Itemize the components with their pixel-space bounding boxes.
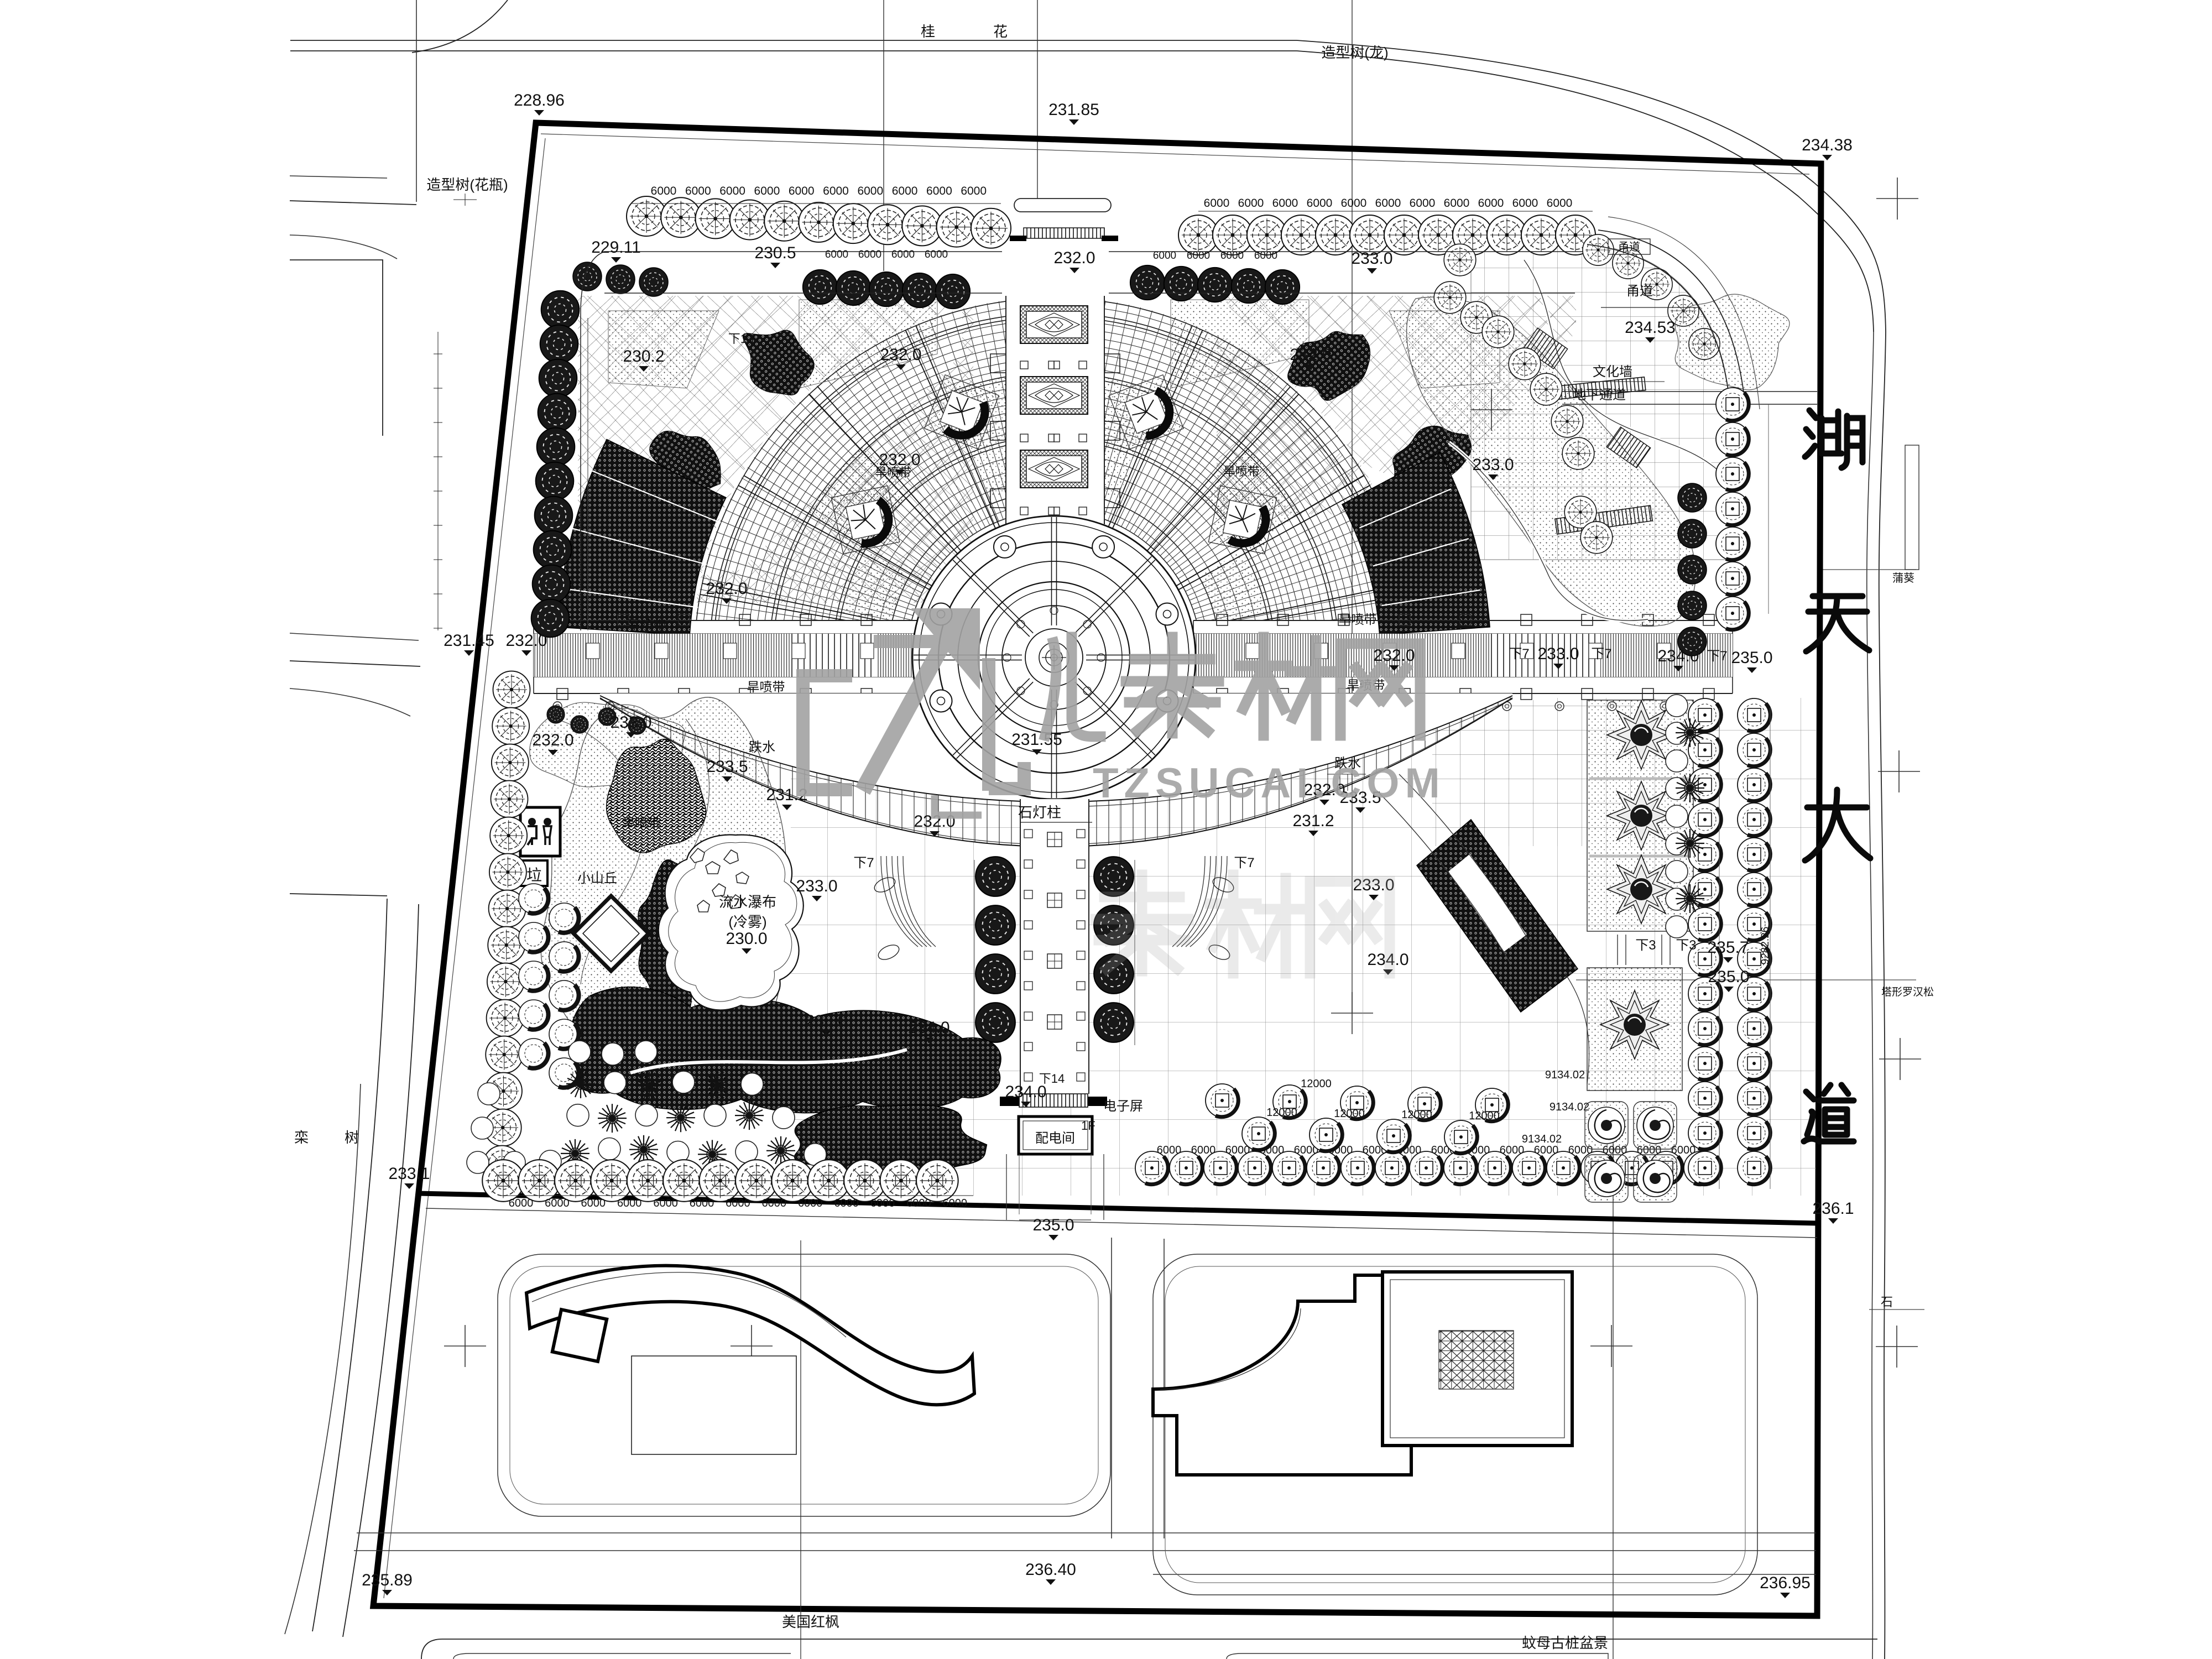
svg-text:6000: 6000 [685,185,711,197]
svg-text:231.85: 231.85 [1048,101,1099,119]
svg-text:下7: 下7 [1509,646,1529,661]
svg-text:6000: 6000 [653,1197,678,1209]
svg-text:231.55: 231.55 [1011,731,1062,749]
svg-text:235.0: 235.0 [1032,1216,1074,1234]
svg-text:6000: 6000 [1341,197,1367,210]
svg-text:配电间: 配电间 [1035,1131,1075,1146]
svg-text:6000: 6000 [1444,197,1470,210]
svg-text:下3: 下3 [1635,938,1656,953]
svg-text:旱喷带: 旱喷带 [628,618,666,632]
svg-text:6000: 6000 [789,185,815,197]
svg-text:12000: 12000 [1301,1078,1332,1090]
svg-text:6000: 6000 [545,1197,570,1209]
svg-text:232.0: 232.0 [1053,249,1095,267]
svg-text:(冷雾): (冷雾) [728,914,766,930]
svg-text:树: 树 [345,1129,359,1146]
svg-text:6000: 6000 [1225,1144,1250,1156]
svg-text:6000: 6000 [834,1197,859,1209]
svg-text:6000: 6000 [754,185,780,197]
svg-text:232.0: 232.0 [706,580,747,598]
svg-text:旱喷带: 旱喷带 [623,816,661,830]
svg-text:6000: 6000 [719,185,745,197]
svg-text:旱喷带: 旱喷带 [875,466,911,479]
svg-text:235.0: 235.0 [1731,649,1772,667]
svg-text:231.45: 231.45 [444,632,494,650]
svg-text:6000: 6000 [726,1197,750,1209]
svg-text:6000: 6000 [509,1197,534,1209]
svg-text:跌水: 跌水 [749,740,775,755]
svg-text:蒲葵: 蒲葵 [1892,572,1914,585]
svg-text:232.0: 232.0 [505,632,547,650]
svg-text:233.0: 233.0 [1537,645,1579,663]
svg-text:文化墙: 文化墙 [1593,364,1632,379]
svg-text:233.0: 233.0 [796,877,837,895]
svg-text:230.0: 230.0 [726,930,767,948]
svg-text:233.0: 233.0 [805,1012,847,1030]
svg-text:6000: 6000 [1534,1144,1559,1156]
svg-text:6000: 6000 [1157,1144,1182,1156]
svg-text:231.2: 231.2 [1292,812,1334,830]
svg-text:1F: 1F [1081,1119,1095,1133]
svg-text:6000: 6000 [1204,197,1230,210]
svg-text:下7: 下7 [853,855,874,870]
svg-text:6000: 6000 [1191,1144,1216,1156]
svg-text:6000: 6000 [857,185,883,197]
svg-text:232.0: 232.0 [1290,346,1331,364]
svg-text:石: 石 [1881,1295,1893,1309]
svg-text:下14: 下14 [1039,1072,1065,1086]
svg-text:6000: 6000 [1238,197,1264,210]
svg-text:6000: 6000 [1410,197,1436,210]
svg-text:6000: 6000 [1307,197,1333,210]
svg-text:234.0: 234.0 [1657,647,1699,665]
svg-text:6000: 6000 [1512,197,1538,210]
svg-text:6000: 6000 [926,185,952,197]
svg-text:234.53: 234.53 [1625,319,1676,337]
svg-text:TZSUCAI.COM: TZSUCAI.COM [1093,760,1446,807]
svg-text:6000: 6000 [1254,250,1277,262]
svg-text:6000: 6000 [870,1197,895,1209]
svg-text:233.0: 233.0 [610,713,651,732]
svg-text:6000: 6000 [762,1197,787,1209]
svg-text:233.5: 233.5 [706,758,748,776]
svg-text:6000: 6000 [617,1197,642,1209]
svg-text:下3: 下3 [1676,938,1696,953]
svg-text:电子屏: 电子屏 [1103,1099,1143,1114]
svg-text:6000: 6000 [1153,250,1176,262]
svg-text:236.1: 236.1 [1812,1199,1854,1218]
svg-text:12000: 12000 [1401,1109,1432,1121]
svg-text:235.89: 235.89 [362,1571,413,1589]
svg-text:12000: 12000 [1266,1107,1297,1119]
svg-text:6000: 6000 [825,249,848,260]
svg-text:233.1: 233.1 [388,1165,430,1183]
svg-text:地下通道: 地下通道 [1573,388,1626,403]
svg-text:9134.02: 9134.02 [1550,1101,1589,1113]
svg-text:美国红枫: 美国红枫 [782,1614,839,1630]
svg-text:6000: 6000 [1375,197,1401,210]
svg-text:垃: 垃 [526,867,542,884]
svg-text:233.0: 233.0 [1472,456,1514,474]
svg-text:236.40: 236.40 [1025,1561,1076,1579]
svg-text:下7: 下7 [1234,855,1254,870]
svg-text:6000: 6000 [1547,197,1573,210]
svg-text:228.96: 228.96 [514,91,565,109]
svg-text:236.95: 236.95 [1760,1574,1811,1592]
svg-text:6000: 6000 [1187,250,1210,262]
svg-text:230.2: 230.2 [623,347,664,366]
svg-text:石灯柱: 石灯柱 [1018,804,1061,821]
svg-text:9134.02: 9134.02 [1522,1133,1562,1145]
svg-text:6000: 6000 [943,1197,968,1209]
svg-text:6000: 6000 [892,185,918,197]
svg-text:桂: 桂 [921,23,935,40]
svg-text:12000: 12000 [1334,1108,1365,1120]
svg-text:流水瀑布: 流水瀑布 [719,894,776,910]
svg-text:6000: 6000 [925,249,948,260]
svg-text:6000: 6000 [1500,1144,1525,1156]
svg-text:花: 花 [993,23,1008,40]
svg-text:6000: 6000 [858,249,881,260]
svg-text:蚊母古桩盆景: 蚊母古桩盆景 [1522,1635,1608,1651]
svg-text:229.11: 229.11 [591,238,641,257]
svg-text:旱喷带: 旱喷带 [1223,465,1260,478]
svg-text:下7: 下7 [1707,649,1727,664]
svg-text:下7: 下7 [1591,646,1611,661]
svg-text:235.0: 235.0 [1708,968,1749,986]
svg-text:12000: 12000 [1469,1110,1500,1122]
svg-text:6000: 6000 [961,185,987,197]
svg-text:旱喷带: 旱喷带 [1339,612,1377,627]
svg-text:旱喷带: 旱喷带 [747,680,785,694]
svg-text:6000: 6000 [651,185,677,197]
svg-text:6000: 6000 [581,1197,606,1209]
svg-text:甬道: 甬道 [1626,284,1653,299]
svg-text:232.0: 232.0 [880,346,921,364]
svg-text:6000: 6000 [891,249,915,260]
svg-text:6000: 6000 [690,1197,714,1209]
svg-text:9134.02: 9134.02 [1545,1069,1585,1081]
svg-text:造型树(龙): 造型树(龙) [1321,44,1388,61]
svg-text:233.0: 233.0 [1351,249,1392,268]
svg-text:6000: 6000 [798,1197,823,1209]
svg-text:232.0: 232.0 [532,731,573,749]
svg-text:6000: 6000 [1272,197,1298,210]
svg-text:塔形罗汉松: 塔形罗汉松 [1881,986,1934,998]
svg-text:6000: 6000 [1478,197,1504,210]
svg-text:235.7: 235.7 [1707,938,1749,957]
svg-text:造型树(花瓶): 造型树(花瓶) [426,176,508,193]
svg-text:234.38: 234.38 [1802,136,1853,154]
svg-text:栾: 栾 [294,1129,309,1146]
svg-text:6000: 6000 [1220,250,1244,262]
svg-text:下13: 下13 [728,332,754,346]
svg-text:230.5: 230.5 [754,244,796,262]
svg-text:小山丘: 小山丘 [577,871,617,886]
svg-text:甬道: 甬道 [1618,241,1640,253]
svg-text:9282.26: 9282.26 [1760,927,1771,965]
svg-text:6000: 6000 [906,1197,931,1209]
svg-text:234.0: 234.0 [908,1019,950,1037]
svg-text:6000: 6000 [823,185,849,197]
